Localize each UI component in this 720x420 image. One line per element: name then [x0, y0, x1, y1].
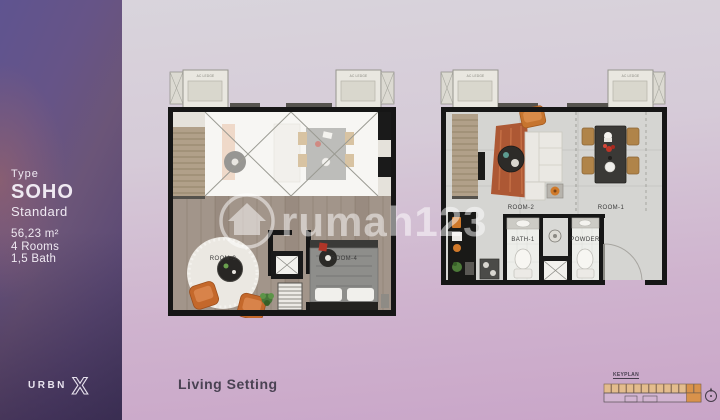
powder-room — [572, 218, 599, 280]
side-table — [547, 184, 563, 198]
urbnx-logo: URBN X — [28, 372, 98, 398]
bathroom — [507, 218, 539, 280]
shaft — [271, 251, 303, 279]
keyplan-diagram — [603, 381, 719, 409]
window — [567, 103, 608, 107]
logo-x-icon: X — [70, 372, 98, 398]
powder-label: POWDER — [570, 237, 600, 243]
caption-living-setting: Living Setting — [178, 376, 278, 392]
logo-wordmark: URBN — [28, 380, 67, 391]
listing-image: Type SOHO Standard 56,23 m² 4 Rooms 1,5 … — [0, 0, 720, 420]
type-variant: Standard — [11, 204, 74, 219]
ac-ledge: AC LEDGE — [608, 70, 665, 108]
ac-ledge: AC LEDGE — [441, 70, 498, 108]
keyplan: KEYPLAN — [603, 363, 719, 414]
upper-floor-plan: AC LEDGE AC LEDGE — [166, 66, 398, 318]
bath-1-label: BATH-1 — [511, 237, 535, 243]
ac-ledge: AC LEDGE — [170, 70, 228, 108]
bed — [310, 240, 378, 310]
lower-floor-plan: AC LEDGE AC LEDGE — [439, 66, 671, 288]
void-over-living — [205, 112, 378, 196]
type-label: Type — [11, 168, 74, 180]
window — [498, 103, 538, 107]
stairs — [173, 127, 205, 197]
keyplan-label: KEYPLAN — [613, 372, 639, 379]
ac-ledge: AC LEDGE — [336, 70, 394, 108]
unit-highlight — [687, 393, 702, 402]
feature-wall — [478, 152, 485, 180]
stairs — [452, 114, 478, 199]
compass-icon — [706, 388, 717, 402]
shower-head — [549, 230, 561, 242]
stair-hatch — [278, 283, 302, 310]
room-2-label: ROOM-2 — [508, 205, 535, 211]
svg-text:AC LEDGE: AC LEDGE — [197, 74, 215, 78]
unit-type-block: Type SOHO Standard — [11, 168, 74, 219]
svg-text:AC LEDGE: AC LEDGE — [622, 74, 640, 78]
room-4-label: ROOM-4 — [331, 256, 358, 262]
window — [230, 103, 260, 107]
coffee-table — [498, 146, 524, 172]
svg-text:AC LEDGE: AC LEDGE — [467, 74, 485, 78]
svg-text:AC LEDGE: AC LEDGE — [350, 74, 368, 78]
room-1-label: ROOM-1 — [598, 205, 625, 211]
building-strip — [604, 384, 701, 402]
unit-specs: 56,23 m² 4 Rooms 1,5 Bath — [11, 228, 59, 266]
spec-bath: 1,5 Bath — [11, 253, 59, 266]
spec-rooms: 4 Rooms — [11, 241, 59, 254]
spec-area: 56,23 m² — [11, 228, 59, 241]
stove — [480, 259, 499, 279]
type-name: SOHO — [11, 181, 74, 203]
svg-text:X: X — [72, 373, 88, 398]
window — [286, 103, 332, 107]
kitchen-counter — [448, 212, 476, 280]
side-table — [381, 294, 389, 308]
room-3-label: ROOM-3 — [210, 256, 237, 262]
